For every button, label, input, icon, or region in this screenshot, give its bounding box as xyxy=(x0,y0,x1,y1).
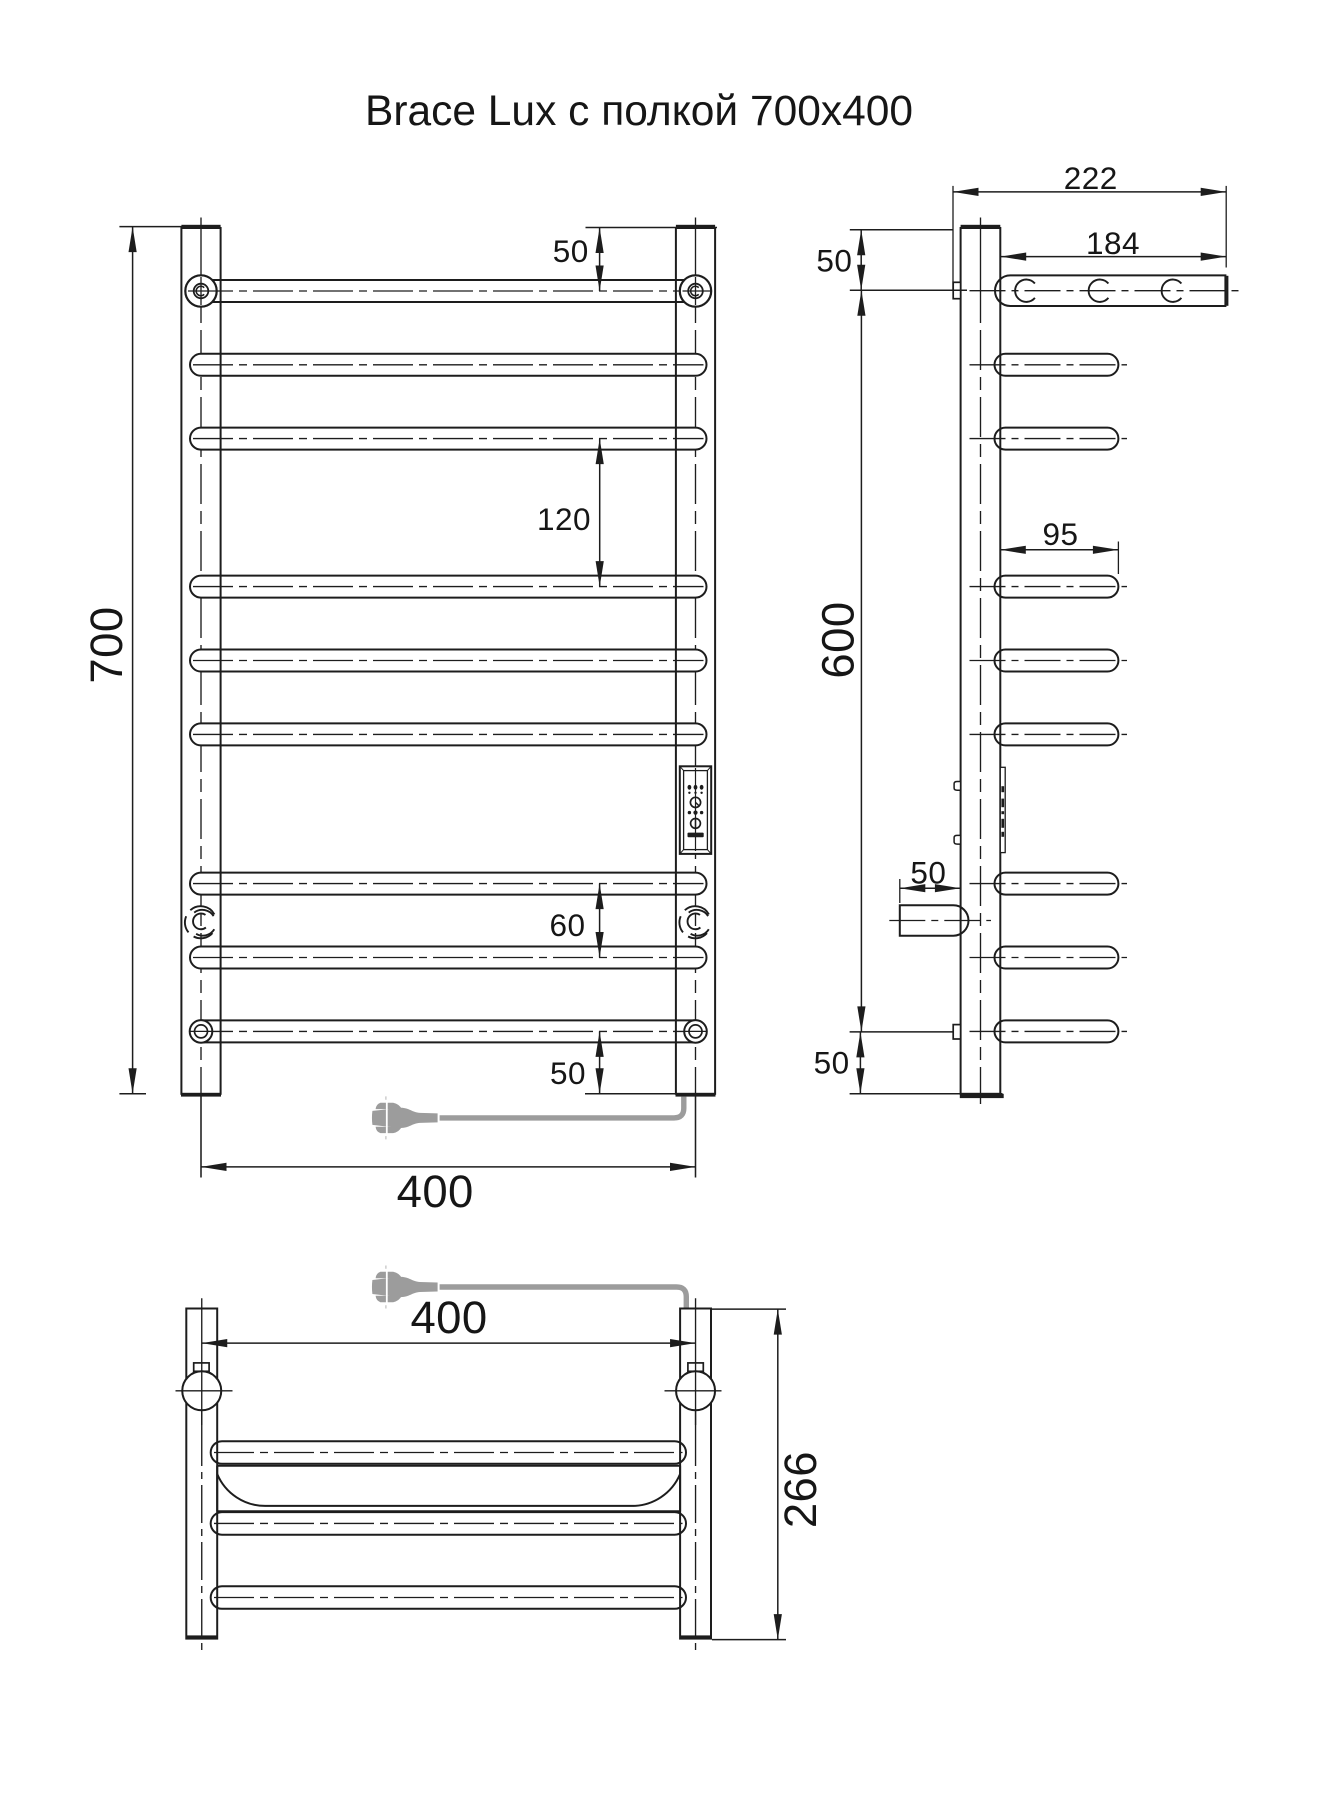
svg-text:222: 222 xyxy=(1064,160,1118,196)
svg-text:50: 50 xyxy=(553,233,589,269)
svg-text:50: 50 xyxy=(910,855,946,891)
svg-text:184: 184 xyxy=(1086,225,1140,261)
svg-text:50: 50 xyxy=(550,1055,586,1091)
svg-text:266: 266 xyxy=(775,1451,826,1528)
svg-text:400: 400 xyxy=(410,1292,487,1343)
svg-text:60: 60 xyxy=(549,907,585,943)
svg-text:50: 50 xyxy=(816,243,852,279)
svg-text:120: 120 xyxy=(537,501,591,537)
svg-text:700: 700 xyxy=(81,606,132,683)
svg-text:50: 50 xyxy=(814,1045,850,1081)
svg-text:400: 400 xyxy=(397,1166,474,1217)
svg-text:600: 600 xyxy=(813,601,864,678)
svg-text:95: 95 xyxy=(1042,516,1078,552)
svg-text:Brace Lux с полкой 700x400: Brace Lux с полкой 700x400 xyxy=(365,88,913,135)
